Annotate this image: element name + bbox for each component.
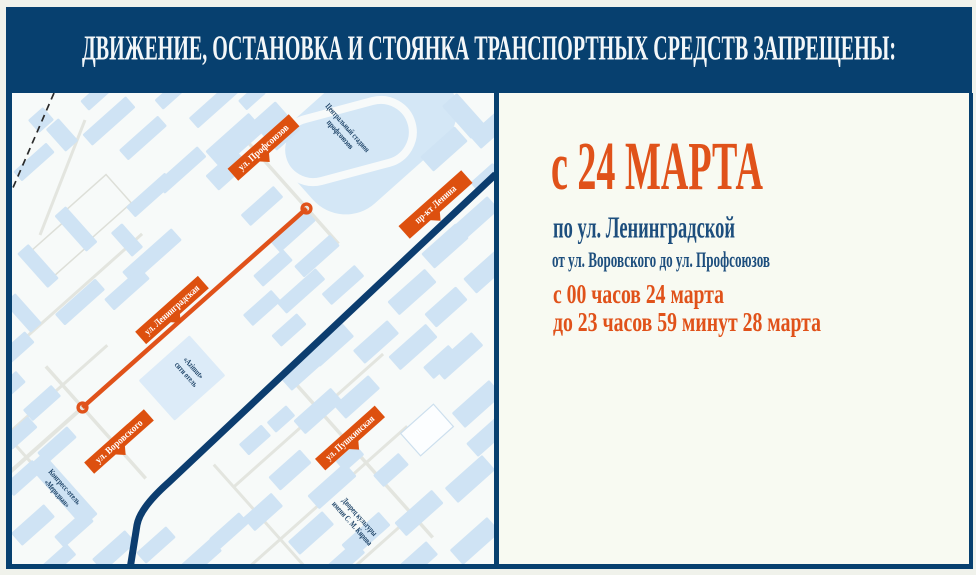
svg-text:до 23 часов 59 минут 28 марта: до 23 часов 59 минут 28 марта (553, 307, 821, 337)
svg-text:ДВИЖЕНИЕ, ОСТАНОВКА И СТОЯНКА: ДВИЖЕНИЕ, ОСТАНОВКА И СТОЯНКА ТРАНСПОРТН… (82, 29, 896, 68)
svg-text:от ул. Воровского до ул. Профс: от ул. Воровского до ул. Профсоюзов (552, 247, 770, 272)
svg-text:по ул. Ленинградской: по ул. Ленинградской (553, 210, 735, 245)
svg-text:с 24 МАРТА: с 24 МАРТА (551, 128, 763, 204)
svg-text:с 00 часов 24 марта: с 00 часов 24 марта (553, 279, 724, 309)
